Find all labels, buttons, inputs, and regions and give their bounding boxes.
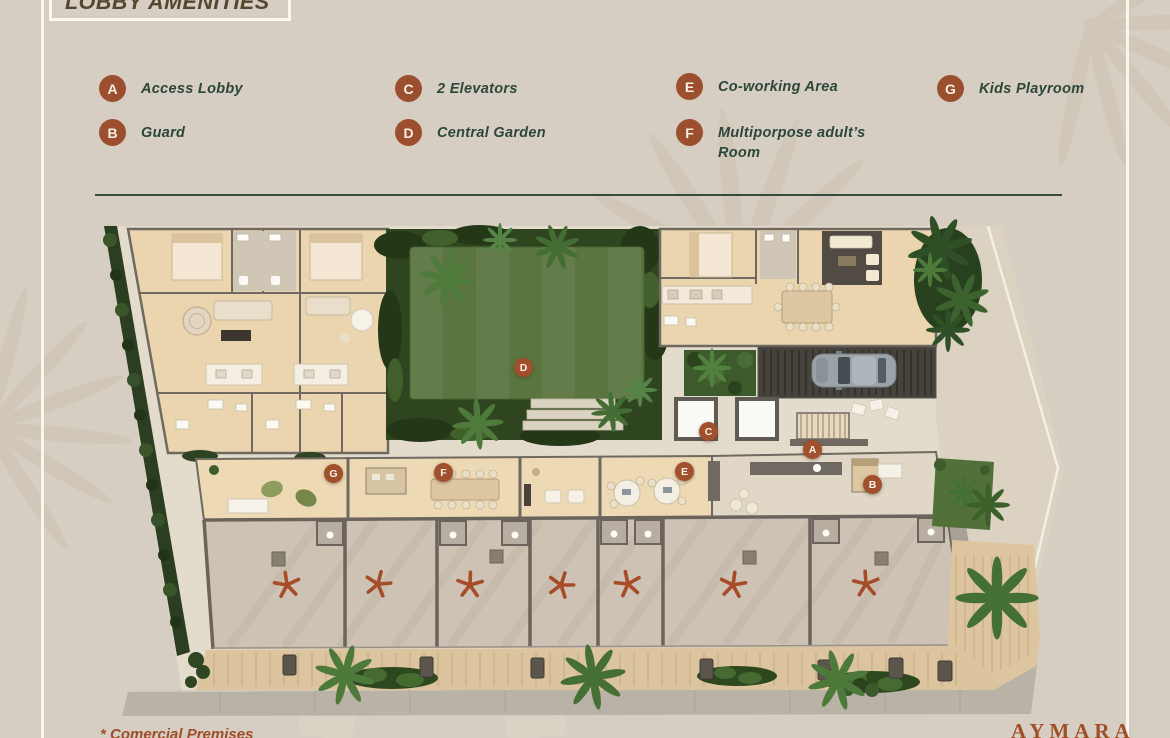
frame-line-right: [1126, 0, 1129, 738]
legend-item-central-garden: D Central Garden: [395, 119, 546, 146]
central-garden: [374, 217, 669, 460]
legend: A Access Lobby B Guard C 2 Elevators D C…: [0, 0, 1170, 190]
plan-marker-d: D: [514, 358, 533, 377]
legend-item-access-lobby: A Access Lobby: [99, 75, 243, 102]
elevator: [737, 399, 777, 439]
frame-line-left: [41, 0, 44, 738]
right-lawn: [932, 458, 994, 530]
palm-tree-icon: [955, 556, 1038, 639]
legend-label: Co-working Area: [718, 77, 838, 97]
left-apartments: [128, 229, 388, 464]
legend-item-elevators: C 2 Elevators: [395, 75, 518, 102]
brand-logo: AYMARA: [1011, 719, 1135, 738]
legend-marker-a: A: [99, 75, 126, 102]
plan-marker-g: G: [324, 464, 343, 483]
legend-label: 2 Elevators: [437, 79, 518, 99]
legend-marker-b: B: [99, 119, 126, 146]
legend-marker-e: E: [676, 73, 703, 100]
plan-marker-b: B: [863, 475, 882, 494]
legend-divider: [95, 194, 1062, 196]
legend-label: Guard: [141, 123, 185, 143]
legend-marker-d: D: [395, 119, 422, 146]
legend-marker-f: F: [676, 119, 703, 146]
driveway: [758, 347, 936, 398]
page-title: LOBBY AMENITIES: [65, 0, 270, 15]
legend-marker-c: C: [395, 75, 422, 102]
lobby-amenities-poster: LOBBY AMENITIES A Access Lobby B Guard C…: [0, 0, 1170, 738]
legend-item-guard: B Guard: [99, 119, 185, 146]
legend-marker-g: G: [937, 75, 964, 102]
legend-item-coworking: E Co-working Area: [676, 73, 838, 100]
plan-marker-e: E: [675, 462, 694, 481]
legend-label: Access Lobby: [141, 79, 243, 99]
legend-item-kids-playroom: G Kids Playroom: [937, 75, 1084, 102]
legend-label: Multiporpose adult’s Room: [718, 123, 878, 164]
plan-marker-a: A: [803, 440, 822, 459]
legend-label: Central Garden: [437, 123, 546, 143]
car-icon: [812, 351, 896, 390]
legend-label: Kids Playroom: [979, 79, 1084, 99]
plan-marker-f: F: [434, 463, 453, 482]
commercial-premises: [204, 514, 985, 649]
commercial-premises-footnote: * Comercial Premises: [100, 726, 253, 738]
plan-marker-c: C: [699, 422, 718, 441]
legend-item-multipurpose-room: F Multiporpose adult’s Room: [676, 119, 878, 164]
